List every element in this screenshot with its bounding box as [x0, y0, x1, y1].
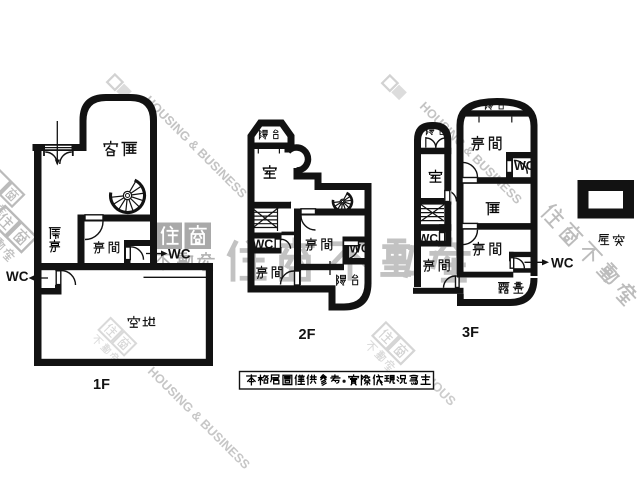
svg-text:WC: WC	[253, 238, 274, 252]
svg-text:1F: 1F	[93, 377, 110, 393]
svg-text:WC: WC	[168, 247, 191, 262]
svg-text:WC: WC	[551, 256, 574, 271]
svg-text:3F: 3F	[462, 325, 479, 341]
svg-text:WC: WC	[514, 159, 535, 173]
svg-text:2F: 2F	[299, 327, 316, 343]
svg-text:WC: WC	[6, 269, 29, 284]
